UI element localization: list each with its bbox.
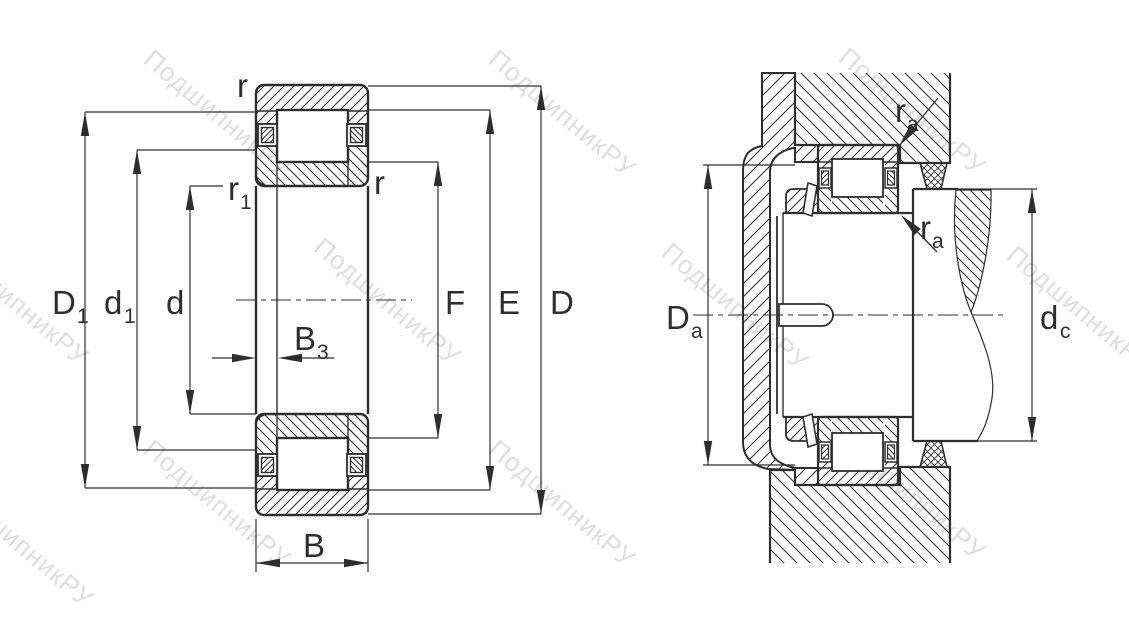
outer-ring-rib <box>257 476 276 489</box>
watermarks: ПодшипникРУ ПодшипникРУ ПодшипникРУ Подш… <box>0 42 1129 614</box>
label-d1: d <box>104 284 122 321</box>
label-B3: B <box>294 320 316 357</box>
label-Da: D <box>666 299 690 336</box>
watermark-text: ПодшипникРУ <box>483 44 642 184</box>
label-r-top: r <box>237 67 248 104</box>
cage-bar <box>351 458 363 473</box>
shaft-break-section <box>954 190 991 312</box>
shaft-break-curve <box>971 312 993 441</box>
left-view-bearing-section: r r 1 r D 1 d 1 d B 3 B F E D <box>52 67 574 572</box>
label-dc: d <box>1040 299 1058 336</box>
roller-top <box>277 110 348 162</box>
label-Da-sub: a <box>691 320 703 343</box>
label-r1-sub: 1 <box>240 191 252 214</box>
roller-bottom <box>277 438 348 490</box>
cage-bar <box>351 128 363 143</box>
cage-bar <box>262 128 274 143</box>
cage-bar <box>262 458 274 473</box>
roller <box>832 159 883 197</box>
roller <box>832 433 883 471</box>
label-B3-sub: 3 <box>317 341 329 364</box>
label-F: F <box>445 284 465 321</box>
outer-ring-rib <box>348 476 367 489</box>
watermark-text: ПодшипникРУ <box>1001 240 1129 380</box>
outer-ring-top-band <box>257 86 367 111</box>
inner-ring-rib <box>348 415 367 454</box>
watermark-text: ПодшипникРУ <box>483 434 642 574</box>
seal-ring-bottom <box>920 441 947 467</box>
outer-ring-rib <box>348 111 367 124</box>
label-d1-sub: 1 <box>124 305 136 328</box>
bearing-dimension-drawing: ПодшипникРУ ПодшипникРУ ПодшипникРУ Подш… <box>0 0 1129 632</box>
inner-ring-rib <box>257 146 276 185</box>
label-ra-top: r <box>895 92 906 129</box>
label-r-right: r <box>374 164 385 201</box>
label-D: D <box>550 284 574 321</box>
label-D1-sub: 1 <box>77 305 89 328</box>
label-ra-bottom: r <box>920 209 931 246</box>
mounted-bearing-top <box>818 145 898 213</box>
inner-ring-band <box>277 162 367 185</box>
outer-ring-bottom-band <box>257 489 367 514</box>
label-d: d <box>166 284 184 321</box>
label-ra-top-sub: a <box>907 113 919 136</box>
watermark-text: ПодшипникРУ <box>308 232 467 372</box>
label-ra-bottom-sub: a <box>932 230 944 253</box>
label-D1: D <box>52 284 76 321</box>
drawing-canvas: ПодшипникРУ ПодшипникРУ ПодшипникРУ Подш… <box>0 0 1129 632</box>
watermark-text: ПодшипникРУ <box>0 474 100 614</box>
outer-ring-rib <box>257 111 276 124</box>
label-B: B <box>303 527 325 564</box>
label-r1: r <box>228 170 239 207</box>
label-E: E <box>498 284 520 321</box>
inner-ring-rib <box>257 415 276 454</box>
mounted-bearing-bottom <box>818 417 898 485</box>
seal-ring-top <box>920 163 947 189</box>
watermark-text: ПодшипникРУ <box>0 232 95 372</box>
label-dc-sub: c <box>1060 320 1071 343</box>
